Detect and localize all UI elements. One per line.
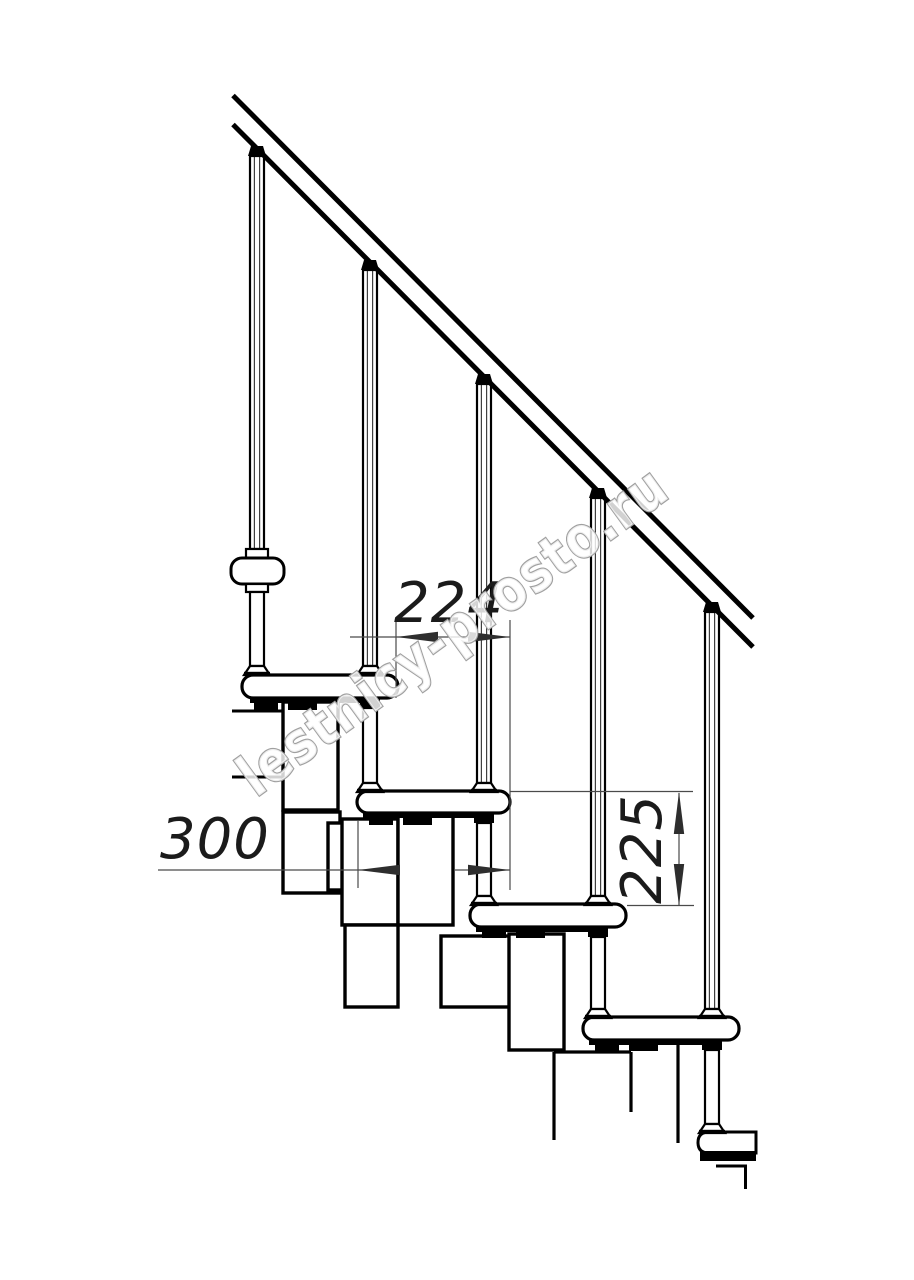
dimension-label-rise: 225 — [610, 794, 675, 904]
drawing-page: { "title": "Modular staircase side-view … — [0, 0, 914, 1280]
tread-3 — [470, 904, 626, 927]
support-module — [398, 815, 453, 925]
baluster-shaft — [250, 592, 264, 666]
mount-tab — [403, 817, 432, 825]
baluster-base-cap — [585, 1015, 611, 1018]
baluster-base-cap — [585, 902, 611, 905]
pass-through-collar — [702, 1041, 722, 1050]
baluster-base-cap — [471, 902, 497, 905]
bracket-collar — [246, 584, 268, 592]
baluster-1 — [231, 146, 284, 675]
baluster-5 — [699, 602, 725, 1133]
support-module — [509, 934, 564, 1050]
baluster-base-cap — [244, 672, 270, 675]
mount-tab — [516, 930, 545, 938]
handrail-top-line — [233, 96, 753, 619]
baluster-shaft — [705, 1050, 719, 1124]
baluster-base-cap — [699, 1015, 725, 1018]
tread-5-partial — [698, 1132, 756, 1153]
dimension-label-depth: 300 — [160, 807, 270, 872]
arrowhead-up — [674, 792, 684, 834]
baluster-shaft — [591, 937, 605, 1009]
arrowhead-down — [674, 864, 684, 906]
pass-through-collar — [588, 928, 608, 937]
staircase-drawing: 224 300 225 lestnicy-prosto.ru — [0, 0, 914, 1280]
support-module — [345, 925, 398, 1007]
baluster-shaft — [477, 823, 491, 896]
mount-tab — [254, 702, 278, 710]
bottom-step-fragment — [698, 1132, 756, 1189]
tread-4 — [583, 1017, 739, 1040]
baluster-base-cap — [357, 789, 383, 792]
mount-tab — [369, 817, 393, 825]
handrail-bracket — [231, 558, 284, 584]
mount-tab — [482, 930, 506, 938]
support-module — [441, 936, 518, 1007]
tread-5-shadow — [700, 1151, 756, 1161]
baluster-shaft — [363, 270, 377, 666]
pass-through-collar — [474, 814, 494, 823]
mount-tab — [629, 1043, 658, 1051]
watermark-text: lestnicy-prosto.ru — [225, 453, 680, 809]
baluster-shaft — [250, 156, 264, 549]
baluster-shaft — [705, 612, 719, 1009]
mount-tab — [595, 1043, 619, 1051]
baluster-base-cap — [699, 1130, 725, 1133]
baluster-base-cap — [471, 789, 497, 792]
tread-2 — [357, 791, 510, 813]
